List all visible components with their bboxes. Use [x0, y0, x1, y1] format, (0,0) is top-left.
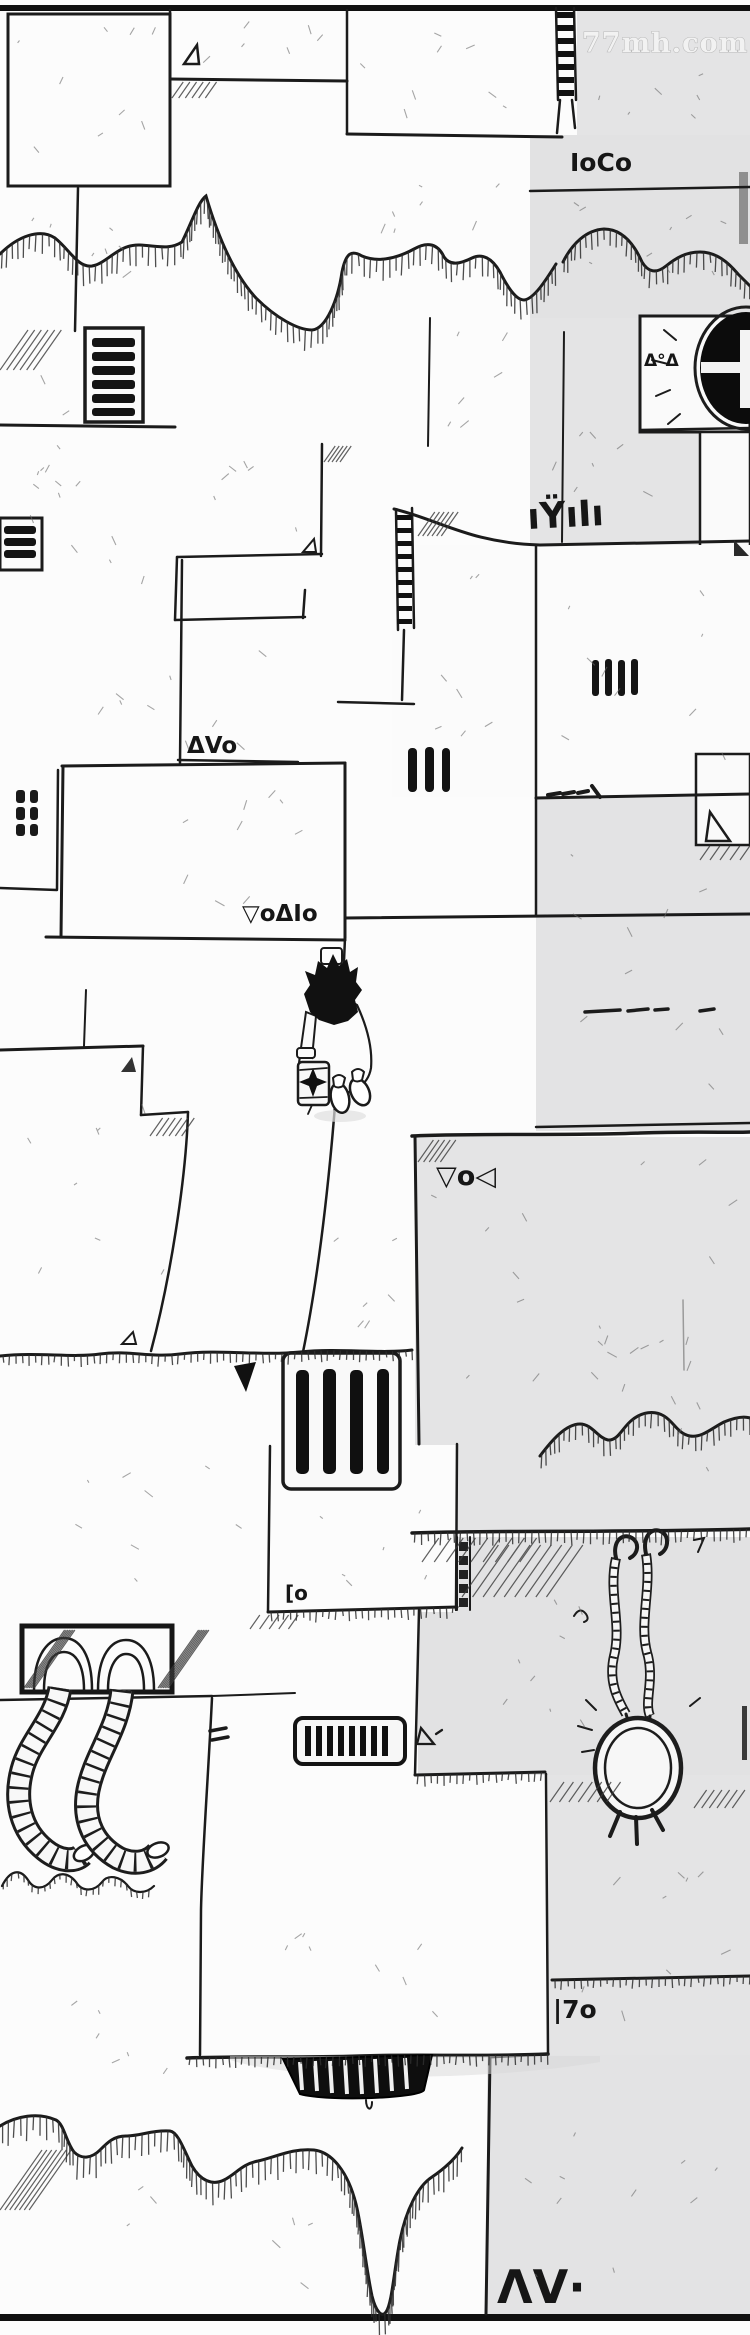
triangle-mark-icon: [184, 45, 199, 64]
left-panel-top: [62, 763, 345, 766]
comic-art: IoCo Δ°Δ ıŸıIı ΔVo ▽oΔIo ▽o◁ [o |7o ΛV· …: [0, 0, 750, 2335]
hose-right: [87, 1690, 171, 1862]
ladder-top: [556, 8, 576, 133]
wall-glyph: ΛV·: [497, 2260, 586, 2314]
seam: [141, 1112, 188, 1115]
character-heel-left: [333, 1075, 345, 1088]
panel-top-left: [8, 14, 170, 186]
gray-wall-upper: [530, 135, 750, 318]
wall-glyph: ıŸıIı: [526, 492, 605, 538]
seam: [177, 554, 322, 557]
seam: [321, 444, 322, 556]
seam: [175, 617, 305, 620]
seam: [0, 425, 175, 427]
character-hair: [304, 954, 362, 1025]
wall-glyph: |7o: [553, 1995, 597, 2024]
panel-border-top: [0, 5, 750, 11]
right-edge-dash: [742, 1706, 747, 1760]
faint-seam: [683, 1300, 684, 1370]
seam: [0, 1046, 143, 1050]
seam: [546, 1774, 548, 2054]
vent-slats-triple: [408, 747, 450, 792]
porthole-crossbar-v: [740, 330, 750, 408]
seam: [178, 760, 298, 762]
seam: [428, 318, 430, 446]
wall-glyph: ▽oΔIo: [242, 901, 318, 927]
watermark: 77mh.com: [582, 28, 748, 59]
seam: [268, 1446, 270, 1611]
seam: [200, 1698, 212, 2055]
vent-left-edge: [0, 518, 42, 570]
drip-edge-left: [0, 196, 556, 330]
vent-grille-upper-left: [85, 328, 143, 422]
vent-small-left: [16, 790, 38, 836]
right-edge-bar: [739, 172, 748, 244]
character-heel-right: [352, 1069, 364, 1082]
wall-glyph: ΔVo: [187, 733, 237, 759]
gray-panel-glyph-lower: [457, 1445, 750, 1532]
wall-glyph: [o: [285, 1581, 308, 1605]
comic-page: IoCo Δ°Δ ıŸıIı ΔVo ▽oΔIo ▽o◁ [o |7o ΛV· …: [0, 0, 750, 2335]
triangle-mark-icon: [303, 539, 316, 552]
character-lantern: [298, 1062, 329, 1114]
triangle-mark-icon: [121, 1057, 136, 1072]
wall-glyph: ▽o◁: [436, 1161, 496, 1192]
vent-box-center: [283, 1353, 400, 1489]
seam: [57, 770, 58, 889]
seam: [347, 134, 562, 137]
seam: [84, 990, 86, 1046]
gray-panel-top-edge: [412, 1132, 750, 1136]
seam: [212, 1693, 295, 1696]
grille-horizontal: [295, 1718, 405, 1764]
left-panel-bottom: [46, 937, 345, 940]
left-panel-left: [61, 766, 63, 937]
gray-wall-cables: [418, 1612, 750, 1775]
seam: [170, 79, 347, 81]
triangle-mark-icon: [122, 1332, 136, 1344]
seam: [0, 1696, 212, 1700]
gray-wall-mid-right: [536, 797, 750, 1131]
panel-border-bottom: [0, 2314, 750, 2321]
seam: [303, 590, 305, 618]
character-cuff: [297, 1048, 315, 1058]
character: [297, 948, 374, 1122]
gray-wall-cables-top: [457, 1537, 750, 1612]
equals-mark-icon: [210, 1728, 228, 1740]
seam: [0, 888, 57, 890]
seam: [180, 560, 182, 763]
seam: [175, 557, 177, 620]
wall-glyph: Δ°Δ: [644, 351, 680, 371]
hanging-ring: [595, 1718, 681, 1818]
black-wedge-icon: [234, 1362, 256, 1392]
wall-glyph: IoCo: [570, 148, 632, 177]
seam: [151, 1112, 188, 1351]
